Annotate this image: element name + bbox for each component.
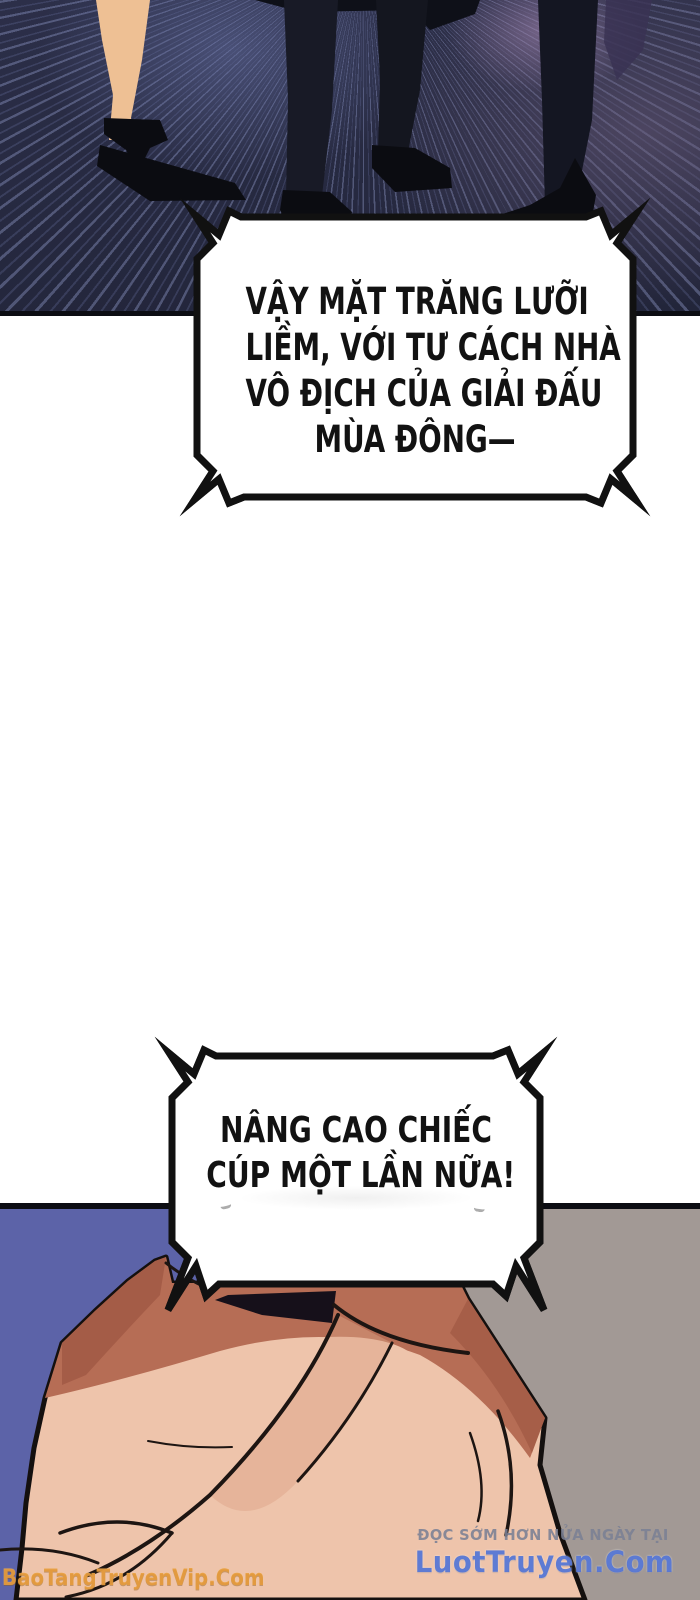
speech-line: LIỀM, VỚI TƯ CÁCH NHÀ (246, 325, 585, 371)
erased-text-smudge (238, 1186, 474, 1210)
speech-line: MÙA ĐÔNG— (246, 417, 585, 463)
speech-bubble-1: VẬY MẶT TRĂNG LƯỠI LIỀM, VỚI TƯ CÁCH NHÀ… (189, 209, 641, 505)
watermark-site-name: LuotTruyen.Com (415, 1545, 672, 1579)
erased-text-remnant (473, 1202, 485, 1212)
watermark-tagline: ĐỌC SỚM HƠN NỬA NGÀY TẠI (416, 1526, 670, 1544)
speech-line: VẬY MẶT TRĂNG LƯỠI (246, 279, 585, 325)
speech-line: NÂNG CAO CHIẾC (206, 1108, 506, 1153)
speech-bubble-2: NÂNG CAO CHIẾC CÚP MỘT LẦN NỮA! (164, 1048, 548, 1316)
watermark-scan-site: BaoTangTruyenVip.Com (2, 1566, 264, 1591)
speech-text-1: VẬY MẶT TRĂNG LƯỠI LIỀM, VỚI TƯ CÁCH NHÀ… (246, 279, 585, 463)
manhwa-page: VẬY MẶT TRĂNG LƯỠI LIỀM, VỚI TƯ CÁCH NHÀ… (0, 0, 700, 1600)
speech-line: VÔ ĐỊCH CỦA GIẢI ĐẤU (246, 371, 585, 417)
watermark-reader-site: ĐỌC SỚM HƠN NỬA NGÀY TẠI LuotTruyen.Com (408, 1526, 678, 1579)
